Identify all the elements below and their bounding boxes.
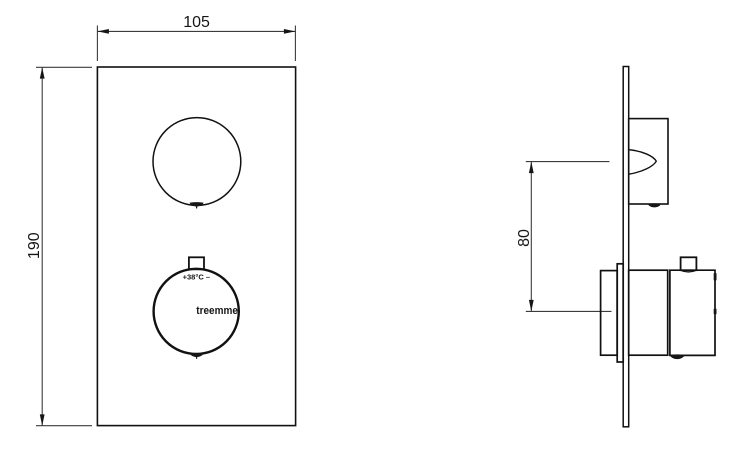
svg-text:105: 105	[183, 14, 210, 31]
svg-text:+38°C –: +38°C –	[183, 273, 210, 282]
svg-text:190: 190	[26, 232, 43, 259]
svg-text:80: 80	[516, 229, 533, 247]
svg-text:treemme: treemme	[196, 305, 238, 317]
